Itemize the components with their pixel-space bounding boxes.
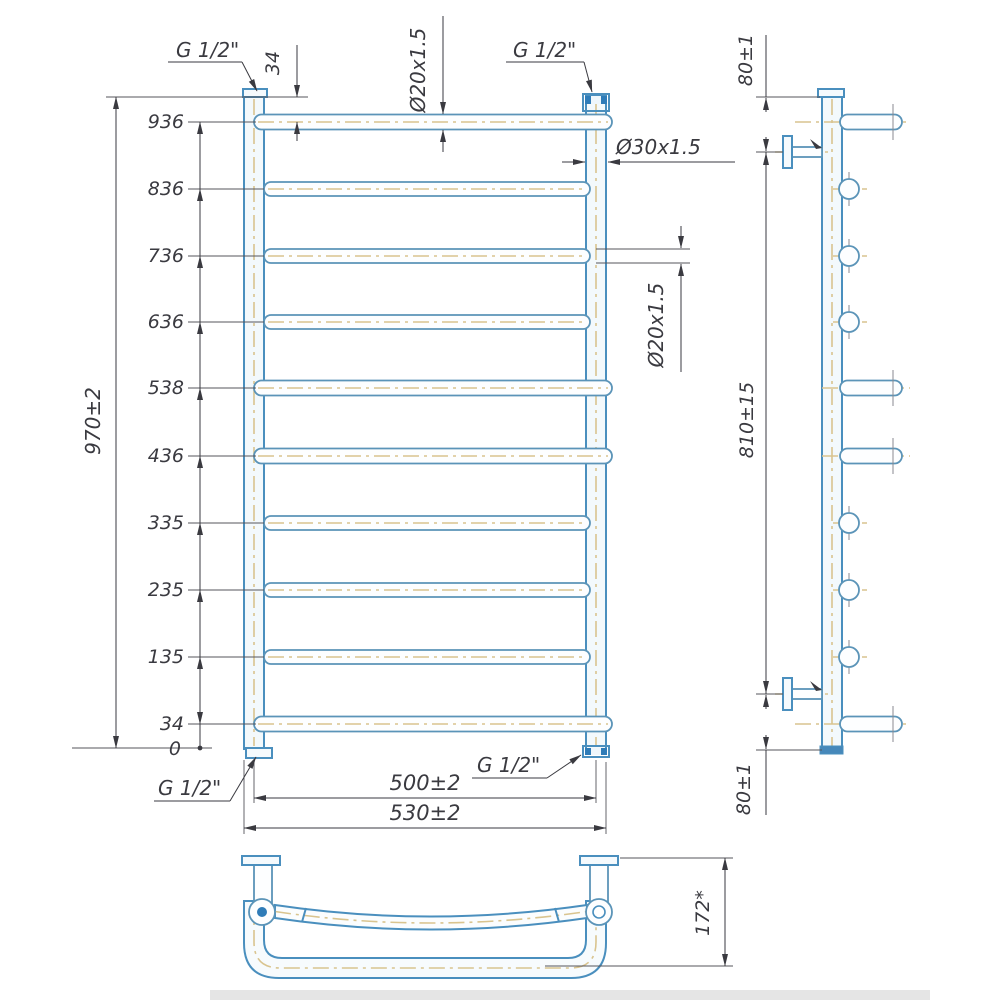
height-labels: 936 836 736 636 538 436 335 235 135 34 0: [148, 111, 184, 760]
dim-overall-height: 970±2: [81, 387, 105, 455]
fitting-leader-top-right: G 1/2": [506, 38, 592, 92]
bowed-rungs: [254, 115, 612, 732]
dim-tube-diameter: Ø30x1.5: [615, 135, 701, 159]
fitting-leader-bottom-left: G 1/2": [154, 757, 256, 801]
dim-side-mount-span: 810±15: [736, 382, 758, 458]
dim-side-bottom-offset: 80±1: [733, 763, 755, 815]
side-rung-stubs: [795, 104, 910, 742]
front-dimensions: 970±2 936: [72, 16, 735, 834]
front-view: [243, 89, 612, 758]
fitting-cap-top-left: [243, 89, 267, 97]
fitting-cap-bottom-left: [246, 748, 272, 758]
technical-drawing: 970±2 936: [0, 0, 1000, 1000]
dim-width-overall: 530±2: [389, 801, 460, 825]
fitting-leader-top-left: G 1/2": [168, 38, 257, 91]
height-label-zero: 0: [169, 738, 181, 760]
fitting-label: G 1/2": [513, 38, 576, 62]
fitting-label: G 1/2": [158, 776, 221, 800]
height-label: 436: [148, 445, 184, 467]
side-cap-top: [818, 89, 844, 97]
plan-bracket-right: [580, 856, 618, 925]
fitting-label: G 1/2": [477, 753, 540, 777]
height-label: 135: [148, 646, 184, 668]
flush-rungs: [264, 182, 590, 664]
dim-rung-diameter-right: Ø20x1.5: [644, 283, 668, 369]
dim-side-top-offset: 80±1: [735, 34, 757, 86]
height-label: 538: [148, 377, 184, 399]
drawing-page: 970±2 936: [0, 0, 1000, 1000]
height-label: 836: [148, 178, 184, 200]
side-cap-bottom: [820, 746, 843, 754]
height-label: 636: [148, 311, 184, 333]
top-view: 172*: [242, 856, 733, 978]
dim-width-centers: 500±2: [389, 771, 460, 795]
bottom-shadow: [210, 990, 930, 1000]
fitting-label: G 1/2": [176, 38, 239, 62]
dim-top-offset: 34: [262, 51, 284, 75]
height-label: 34: [160, 713, 184, 735]
side-view: 80±1 810±15 80±1: [733, 34, 910, 815]
height-label: 235: [148, 579, 184, 601]
dim-depth: 172*: [692, 890, 714, 936]
height-label: 936: [148, 111, 184, 133]
fitting-leader-bottom-right: G 1/2": [472, 753, 581, 778]
height-label: 335: [148, 512, 184, 534]
height-label: 736: [148, 245, 184, 267]
dim-rung-diameter-top: Ø20x1.5: [406, 28, 430, 114]
